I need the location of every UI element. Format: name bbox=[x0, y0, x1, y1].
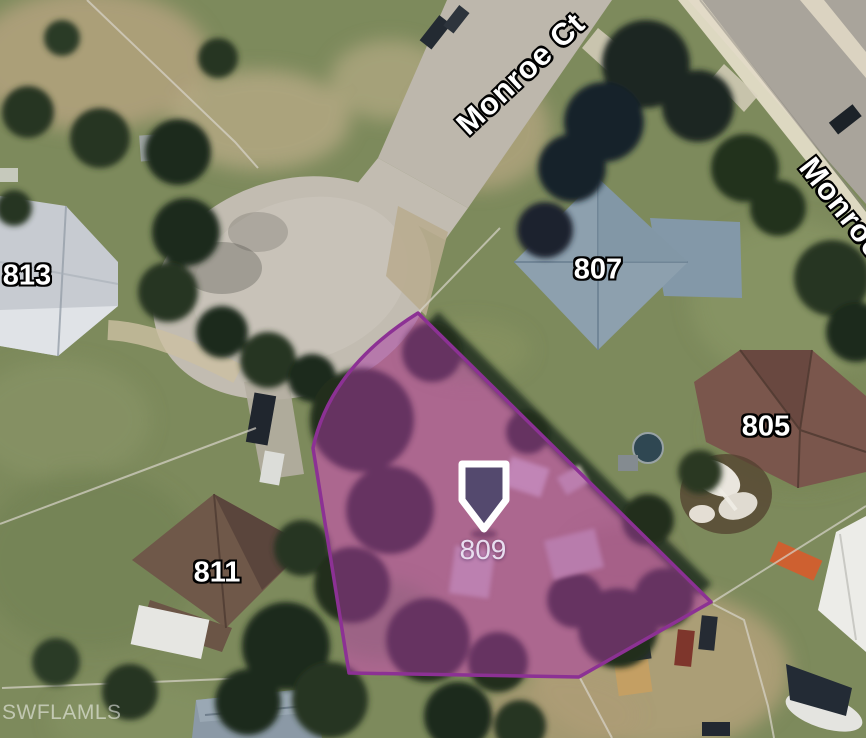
satellite-imagery bbox=[0, 0, 866, 738]
satellite-map-view[interactable]: Monroe Ct Monroe 813 807 805 811 809 SWF… bbox=[0, 0, 866, 738]
rv-trailer bbox=[131, 605, 210, 659]
